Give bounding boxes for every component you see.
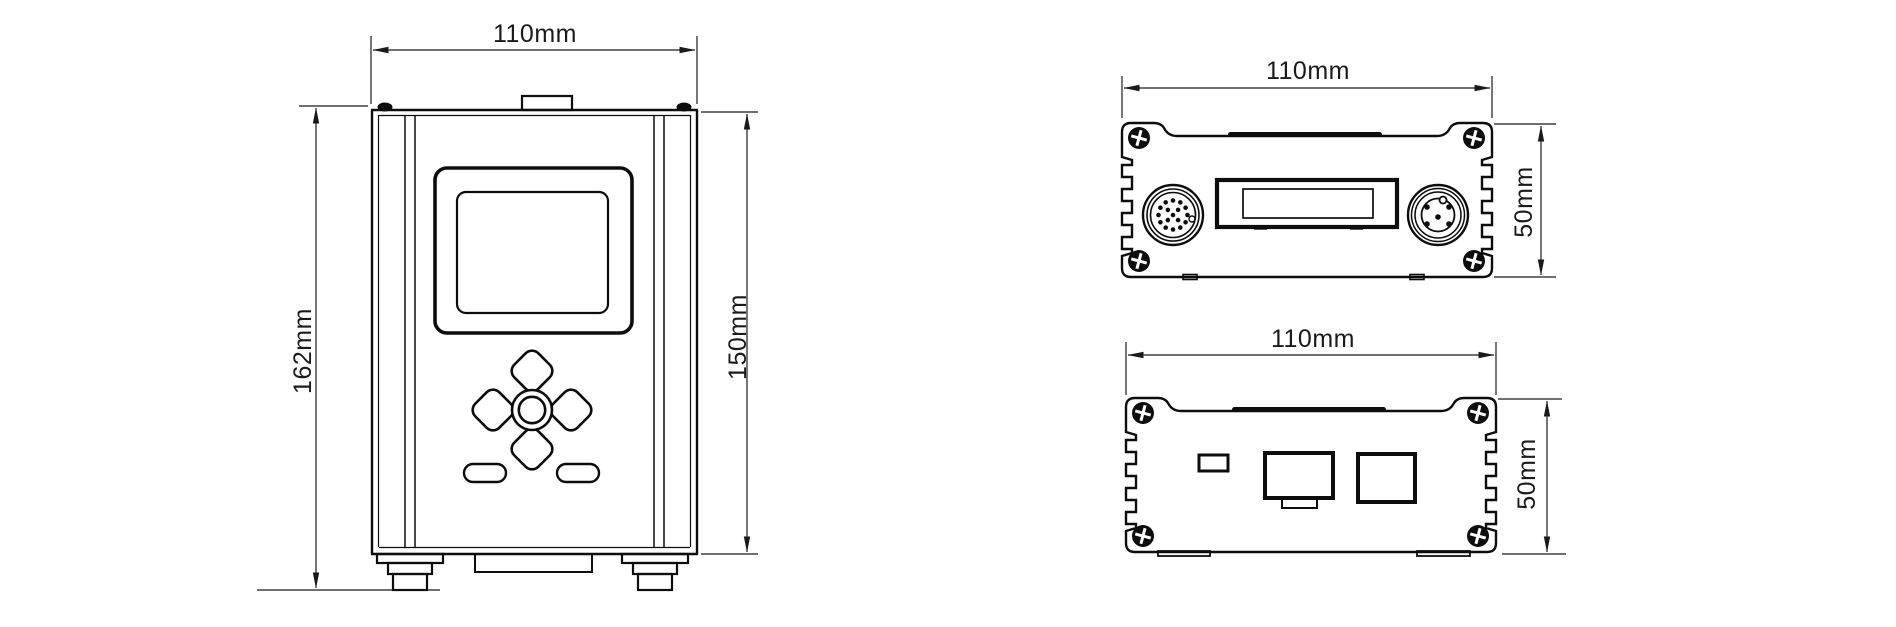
rear-b-height-dimension: 50mm	[1498, 399, 1566, 554]
rear-b-width-dimension: 110mm	[1126, 325, 1496, 395]
rear-a-panel	[1122, 123, 1492, 280]
square-port	[1358, 454, 1415, 502]
front-body-height-label: 150mm	[724, 294, 752, 380]
front-enclosure-body	[371, 96, 698, 554]
right-cable-gland	[622, 554, 688, 590]
network-port	[1265, 453, 1333, 508]
dpad-right-button	[547, 386, 595, 434]
corner-screw-icon	[1132, 402, 1154, 424]
bottom-foot	[1417, 551, 1470, 556]
dpad-down-button	[508, 425, 556, 473]
rear-a-width-label: 110mm	[1266, 57, 1350, 85]
top-tab	[522, 96, 572, 110]
gland-step	[377, 554, 443, 563]
dpad-control	[469, 347, 595, 473]
gland-step	[638, 574, 672, 590]
rear-connector-panel-view: 110mm 50mm	[1122, 57, 1556, 280]
dpad-up-button	[508, 347, 556, 395]
slot-frame	[1217, 180, 1397, 227]
panel-outline	[1122, 123, 1492, 277]
corner-screw-icon	[1467, 525, 1489, 547]
corner-screw-icon	[1467, 402, 1489, 424]
dpad-left-button	[469, 386, 517, 434]
gland-step	[393, 574, 427, 590]
front-overall-height-dimension: 162mm	[257, 106, 440, 590]
circular-connector-5pin	[1408, 185, 1468, 245]
left-cable-gland	[377, 554, 443, 590]
corner-screw-icon	[1463, 250, 1485, 272]
keying-notch	[1440, 197, 1447, 204]
rear-a-width-dimension: 110mm	[1122, 57, 1492, 118]
front-view: 110mm 162mm 150mm	[257, 20, 758, 590]
rear-a-height-label: 50mm	[1510, 166, 1538, 237]
front-body-height-dimension: 150mm	[701, 112, 758, 554]
corner-screw-icon	[1128, 250, 1150, 272]
rear-b-width-label: 110mm	[1271, 325, 1355, 353]
vent-slot	[1228, 132, 1382, 137]
function-buttons	[464, 464, 599, 482]
connector-pins	[1156, 198, 1190, 232]
right-function-button	[557, 464, 599, 482]
rear-b-height-label: 50mm	[1513, 438, 1541, 509]
bottom-foot	[1158, 551, 1210, 556]
corner-screw-icon	[1128, 127, 1150, 149]
dpad-ok-button	[519, 397, 545, 423]
bottom-connectors	[377, 554, 688, 590]
gland-step	[633, 563, 677, 574]
bottom-recess	[475, 555, 592, 572]
display-screen	[435, 168, 632, 333]
front-width-label: 110mm	[493, 20, 577, 48]
rear-b-panel	[1126, 398, 1496, 556]
slot-window	[1243, 189, 1373, 218]
technical-drawing-page: 110mm 162mm 150mm	[0, 0, 1896, 627]
rear-display-slot	[1217, 180, 1397, 229]
rear-port-panel-view: 110mm 50mm	[1126, 325, 1566, 556]
front-width-dimension: 110mm	[371, 20, 697, 104]
rear-a-height-dimension: 50mm	[1494, 124, 1556, 277]
vent-slot	[1232, 407, 1386, 412]
front-overall-height-label: 162mm	[289, 308, 317, 394]
circular-connector-multipin	[1143, 185, 1203, 245]
top-screw-head	[677, 103, 692, 112]
dimension-drawing: 110mm 162mm 150mm	[0, 0, 1896, 627]
gland-step	[622, 554, 688, 563]
connector-pins	[1424, 204, 1452, 227]
corner-screw-icon	[1132, 525, 1154, 547]
keying-hole	[1189, 216, 1195, 222]
top-screw-head	[378, 103, 393, 112]
screen-window	[457, 192, 608, 313]
panel-outline	[1126, 398, 1496, 552]
corner-screw-icon	[1463, 127, 1485, 149]
port-opening	[1265, 453, 1333, 498]
left-function-button	[464, 464, 506, 482]
gland-step	[388, 563, 432, 574]
led-window	[1199, 455, 1228, 471]
